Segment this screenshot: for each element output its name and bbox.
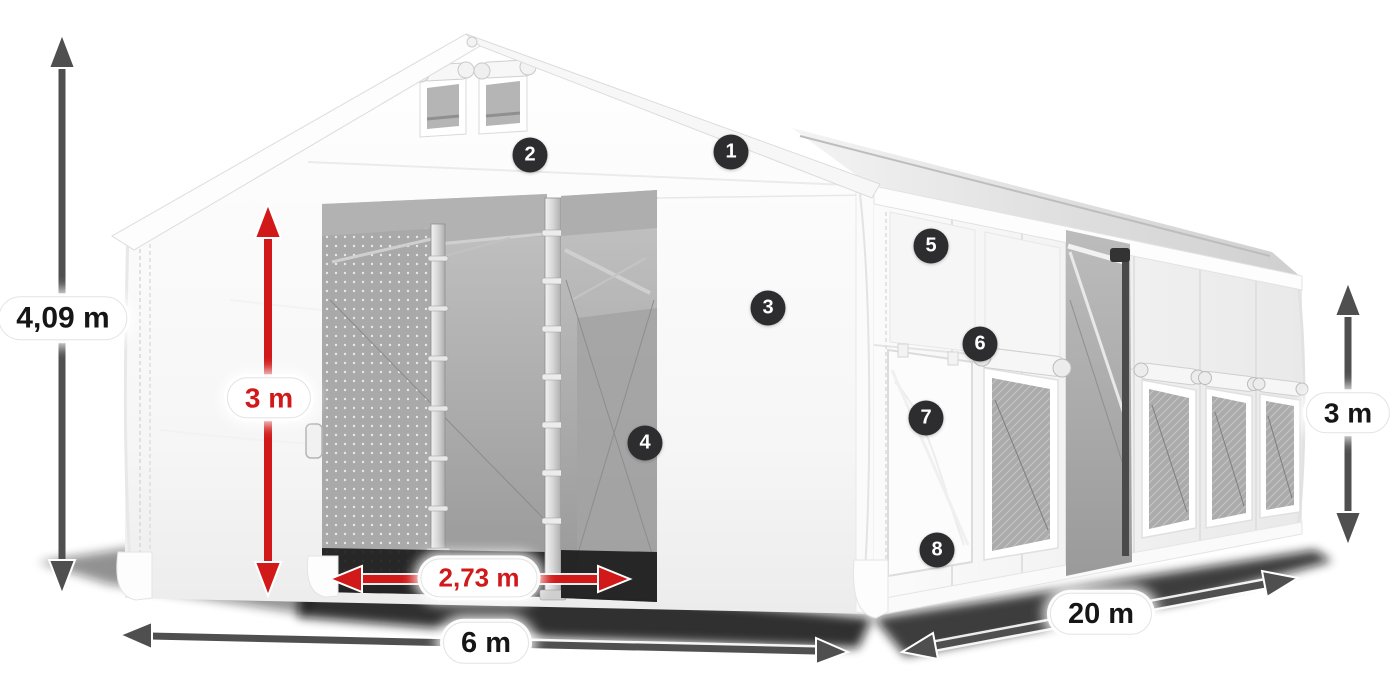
hotspot-marker-8[interactable]: 8 xyxy=(920,533,955,568)
dimension-label-tent-length: 20 m xyxy=(1050,593,1152,635)
tent-dimension-diagram: 4,09 m 3 m 2,73 m 6 m 20 m 3 m 1 2 3 4 5… xyxy=(0,0,1400,700)
dimension-label-total-height: 4,09 m xyxy=(0,296,128,340)
hotspot-marker-1[interactable]: 1 xyxy=(714,135,749,170)
door-opening-left xyxy=(322,194,547,597)
hotspot-marker-7[interactable]: 7 xyxy=(909,401,944,436)
hotspot-marker-6[interactable]: 6 xyxy=(963,327,998,362)
hotspot-marker-3[interactable]: 3 xyxy=(751,291,786,326)
side-door-opening xyxy=(1066,230,1132,576)
dimension-label-door-height: 3 m xyxy=(227,377,311,418)
dimension-label-door-width: 2,73 m xyxy=(421,558,538,597)
dimension-label-side-height: 3 m xyxy=(1306,392,1390,433)
gable-vent-window-right xyxy=(474,59,536,134)
hotspot-marker-2[interactable]: 2 xyxy=(513,138,548,173)
hotspot-marker-4[interactable]: 4 xyxy=(628,426,663,461)
tent-illustration xyxy=(0,0,1400,700)
dimension-label-tent-width: 6 m xyxy=(443,622,529,664)
door-handle xyxy=(306,424,322,458)
door-opening-right xyxy=(561,190,657,602)
hotspot-marker-5[interactable]: 5 xyxy=(914,229,949,264)
